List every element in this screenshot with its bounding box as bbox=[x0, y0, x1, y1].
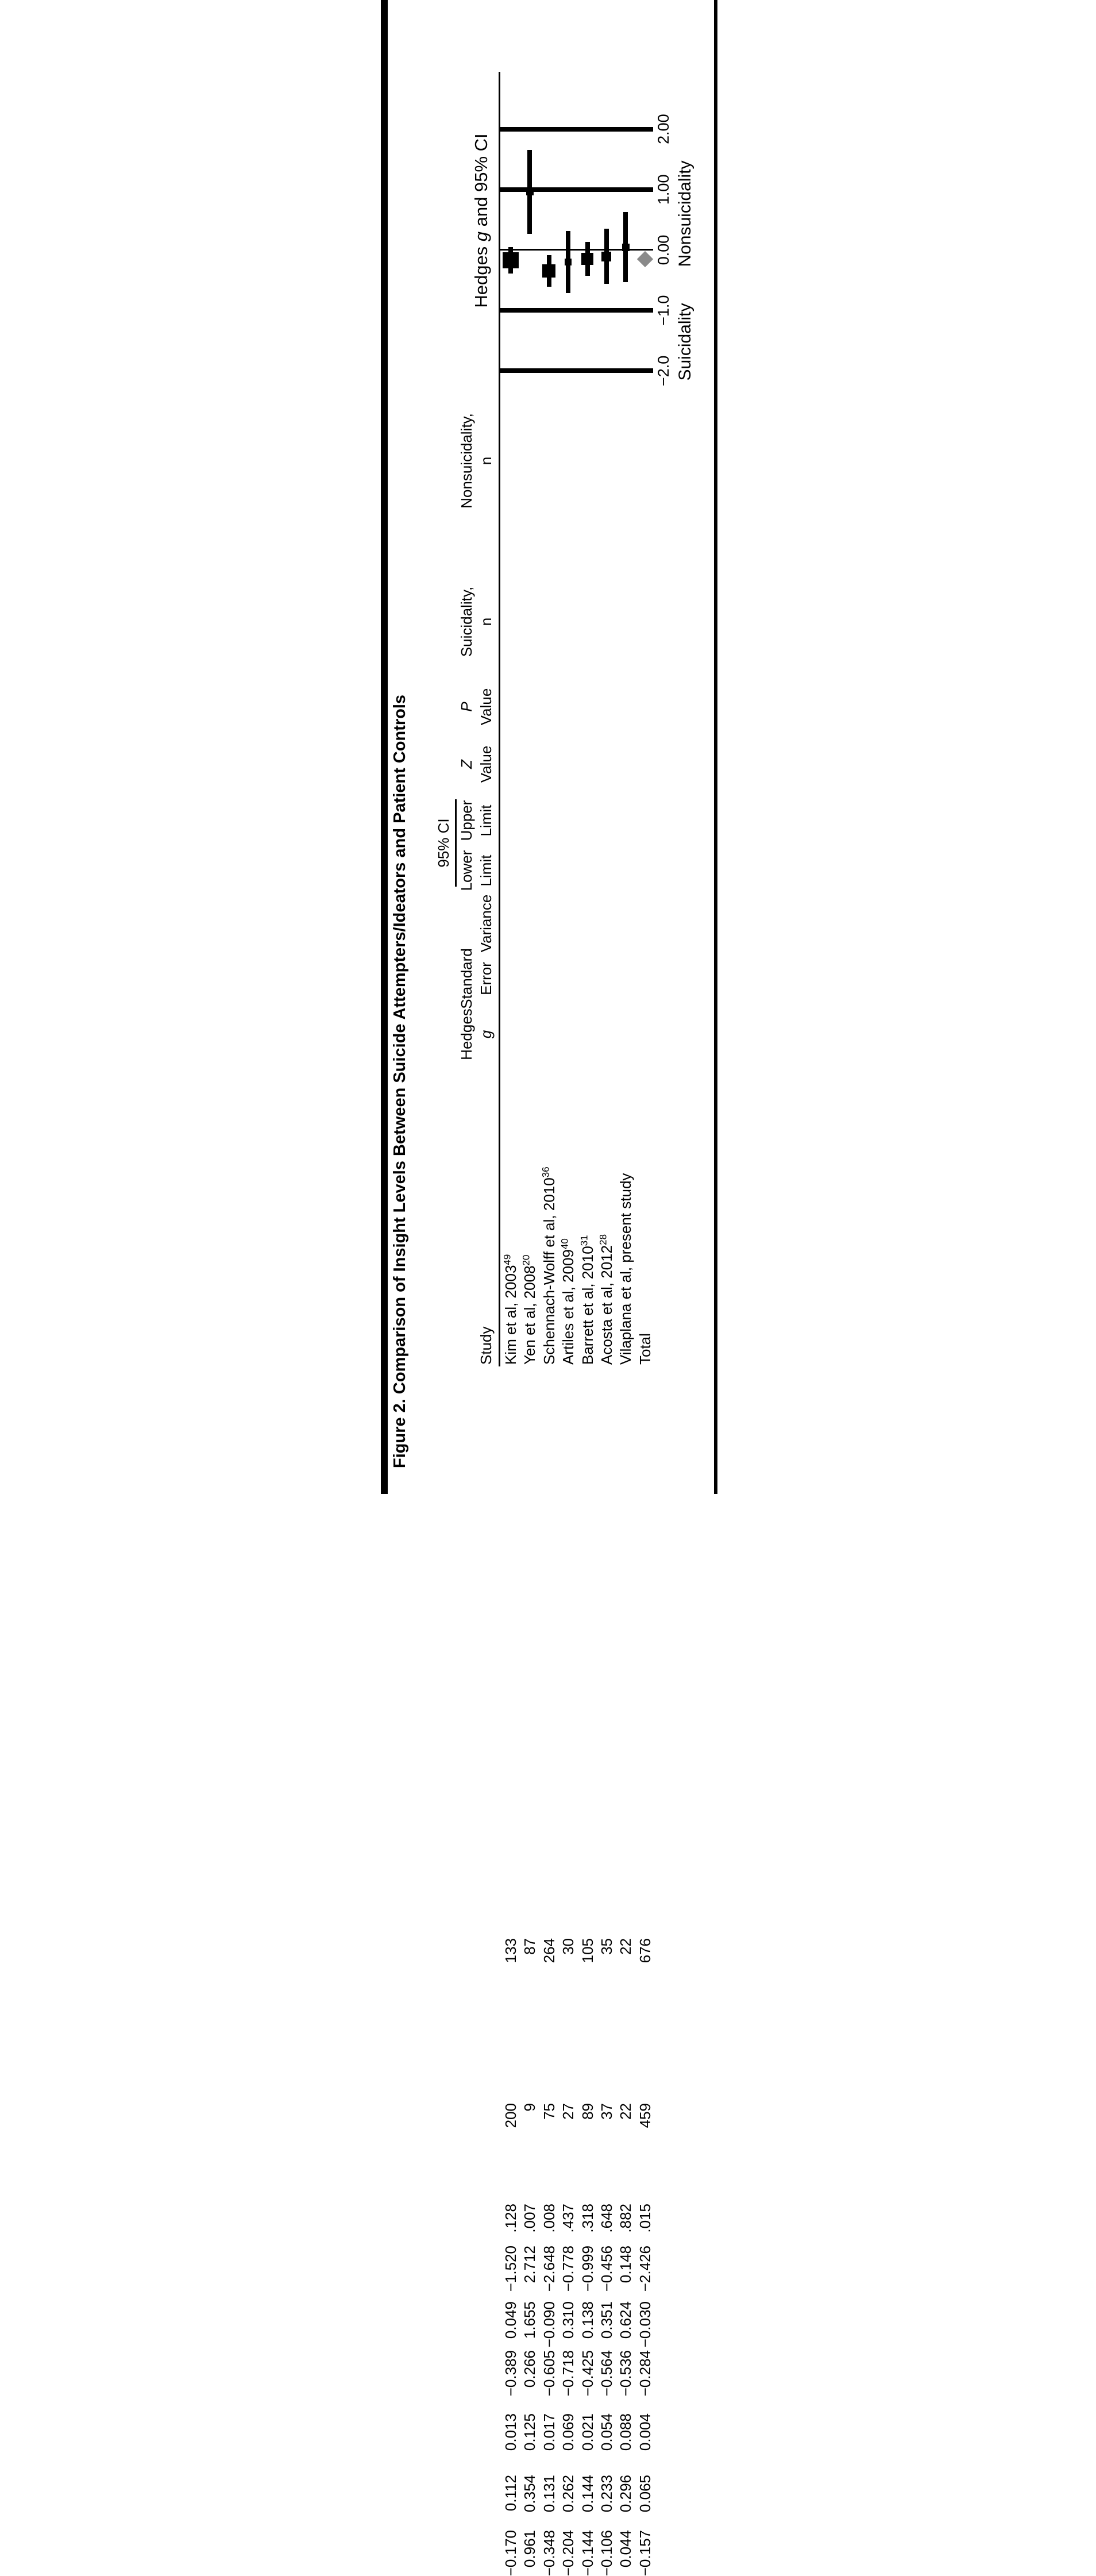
col-header-g-line1: Hedges bbox=[457, 1008, 476, 1060]
cell-z: −0.999 bbox=[578, 2246, 597, 2292]
cell-lower: −0.564 bbox=[597, 2350, 616, 2396]
gridline-1.00 bbox=[500, 187, 653, 192]
cell-upper: −0.030 bbox=[635, 2301, 655, 2347]
cell-variance: 0.017 bbox=[539, 2413, 559, 2451]
figure-stage: Figure 2. Comparison of Insight Levels B… bbox=[0, 0, 1096, 1494]
cell-nonsuic: 30 bbox=[558, 1938, 578, 1955]
col-header-se-line2: Error bbox=[476, 962, 496, 995]
study-name: Vilaplana et al, present study bbox=[616, 1173, 635, 1365]
gridline-−2.0 bbox=[500, 368, 653, 373]
cell-g: −0.106 bbox=[597, 2530, 616, 2576]
cell-z: −2.648 bbox=[539, 2246, 559, 2292]
cell-suic: 459 bbox=[635, 2103, 655, 2128]
study-reference-superscript: 40 bbox=[559, 1238, 570, 1249]
cell-lower: −0.389 bbox=[501, 2350, 520, 2396]
study-name-text: Kim et al, 2003 bbox=[502, 1265, 519, 1365]
col-header-variance-line2: Variance bbox=[476, 895, 496, 953]
cell-nonsuic: 87 bbox=[520, 1938, 539, 1955]
study-name: Acosta et al, 201228 bbox=[597, 1234, 616, 1365]
cell-upper: 0.624 bbox=[616, 2301, 635, 2339]
cell-variance: 0.125 bbox=[520, 2413, 539, 2451]
cell-upper: 0.138 bbox=[578, 2301, 597, 2339]
plot-header: Hedges g and 95% CI bbox=[471, 133, 492, 307]
total-diamond bbox=[636, 251, 653, 267]
col-header-upper-line2: Limit bbox=[476, 805, 496, 837]
plot-header-g-italic: g bbox=[471, 232, 491, 241]
cell-nonsuic: 676 bbox=[635, 1938, 655, 1963]
cell-p: .015 bbox=[635, 2204, 655, 2233]
tick-label-−1.0: −1.0 bbox=[655, 295, 673, 326]
figure-title: Figure 2. Comparison of Insight Levels B… bbox=[391, 695, 410, 1468]
cell-variance: 0.004 bbox=[635, 2413, 655, 2451]
effect-size-square bbox=[526, 188, 534, 195]
tick-label-0.00: 0.00 bbox=[655, 235, 673, 265]
cell-upper: 1.655 bbox=[520, 2301, 539, 2339]
table-header-rule bbox=[499, 72, 500, 1366]
axis-label-nonsuicidality: Nonsuicidality bbox=[676, 160, 695, 267]
cell-upper: 0.310 bbox=[558, 2301, 578, 2339]
study-name-text: Vilaplana et al, present study bbox=[617, 1173, 634, 1365]
cell-z: 0.148 bbox=[616, 2246, 635, 2283]
plot-header-text: Hedges bbox=[471, 241, 491, 307]
cell-suic: 75 bbox=[539, 2103, 559, 2120]
cell-p: .128 bbox=[501, 2204, 520, 2233]
cell-suic: 22 bbox=[616, 2103, 635, 2120]
study-name: Artiles et al, 200940 bbox=[558, 1238, 578, 1365]
study-name-text: Total bbox=[636, 1333, 654, 1365]
cell-se: 0.296 bbox=[616, 2475, 635, 2512]
cell-upper: −0.090 bbox=[539, 2301, 559, 2347]
study-name: Kim et al, 200349 bbox=[501, 1254, 520, 1365]
cell-p: .437 bbox=[558, 2204, 578, 2233]
cell-nonsuic: 22 bbox=[616, 1938, 635, 1955]
cell-g: −0.204 bbox=[558, 2530, 578, 2576]
figure-top-rule bbox=[381, 0, 388, 1494]
study-reference-superscript: 28 bbox=[597, 1234, 608, 1245]
cell-lower: −0.605 bbox=[539, 2350, 559, 2396]
cell-se: 0.065 bbox=[635, 2475, 655, 2512]
cell-se: 0.112 bbox=[501, 2475, 520, 2511]
col-header-suic-line2: n bbox=[476, 618, 496, 626]
cell-se: 0.144 bbox=[578, 2475, 597, 2512]
rotated-journal-page: { "title": "Figure 2. Comparison of Insi… bbox=[0, 0, 1096, 1494]
cell-upper: 0.351 bbox=[597, 2301, 616, 2339]
col-header-g-line2: g bbox=[476, 1030, 496, 1038]
cell-suic: 37 bbox=[597, 2103, 616, 2120]
cell-se: 0.233 bbox=[597, 2475, 616, 2512]
cell-g: −0.157 bbox=[635, 2530, 655, 2576]
study-name: Barrett et al, 201031 bbox=[578, 1235, 597, 1365]
cell-g: −0.348 bbox=[539, 2530, 559, 2576]
cell-suic: 9 bbox=[520, 2103, 539, 2111]
study-name: Schennach-Wolff et al, 201036 bbox=[539, 1166, 559, 1365]
cell-p: .882 bbox=[616, 2204, 635, 2233]
study-name-text: Acosta et al, 2012 bbox=[598, 1245, 615, 1365]
axis-label-suicidality: Suicidality bbox=[676, 303, 695, 380]
cell-lower: −0.284 bbox=[635, 2350, 655, 2396]
study-name-text: Schennach-Wolff et al, 2010 bbox=[541, 1177, 558, 1365]
cell-lower: −0.718 bbox=[558, 2350, 578, 2396]
plot-header-text: and 95% CI bbox=[471, 133, 491, 232]
axis-zero-line bbox=[500, 249, 653, 251]
study-name: Total bbox=[635, 1333, 655, 1365]
cell-se: 0.262 bbox=[558, 2475, 578, 2512]
effect-size-square bbox=[601, 252, 611, 261]
cell-nonsuic: 264 bbox=[539, 1938, 559, 1963]
gridline-2.00 bbox=[500, 127, 653, 132]
cell-variance: 0.069 bbox=[558, 2413, 578, 2451]
cell-nonsuic: 105 bbox=[578, 1938, 597, 1963]
cell-variance: 0.021 bbox=[578, 2413, 597, 2451]
study-name-text: Yen et al, 2008 bbox=[521, 1265, 538, 1365]
col-header-p-line1: P bbox=[457, 702, 476, 711]
figure-bottom-rule bbox=[714, 0, 717, 1494]
study-reference-superscript: 49 bbox=[501, 1254, 512, 1265]
cell-z: 2.712 bbox=[520, 2246, 539, 2283]
cell-variance: 0.088 bbox=[616, 2413, 635, 2451]
cell-g: −0.144 bbox=[578, 2530, 597, 2576]
cell-se: 0.131 bbox=[539, 2475, 559, 2512]
effect-size-square bbox=[565, 259, 572, 266]
ci-spanner-label: 95% CI bbox=[435, 818, 453, 867]
effect-size-square bbox=[622, 244, 630, 251]
cell-nonsuic: 133 bbox=[501, 1938, 520, 1963]
study-name-text: Barrett et al, 2010 bbox=[579, 1246, 596, 1365]
tick-label-−2.0: −2.0 bbox=[655, 356, 673, 386]
cell-suic: 27 bbox=[558, 2103, 578, 2120]
cell-z: −0.778 bbox=[558, 2246, 578, 2292]
tick-label-2.00: 2.00 bbox=[655, 114, 673, 144]
cell-z: −0.456 bbox=[597, 2246, 616, 2292]
cell-g: −0.170 bbox=[501, 2530, 520, 2576]
gridline-−1.0 bbox=[500, 308, 653, 313]
effect-size-square bbox=[581, 253, 593, 265]
cell-p: .318 bbox=[578, 2204, 597, 2233]
cell-p: .008 bbox=[539, 2204, 559, 2233]
effect-size-square bbox=[542, 264, 555, 278]
effect-size-square bbox=[503, 252, 519, 268]
col-header-nonsuic-line2: n bbox=[476, 457, 496, 465]
study-reference-superscript: 31 bbox=[578, 1235, 589, 1246]
col-header-se-line1: Standard bbox=[457, 948, 476, 1009]
cell-nonsuic: 35 bbox=[597, 1938, 616, 1955]
cell-variance: 0.054 bbox=[597, 2413, 616, 2451]
cell-se: 0.354 bbox=[520, 2475, 539, 2512]
study-name: Yen et al, 200820 bbox=[520, 1255, 539, 1365]
col-header-z-line1: Z bbox=[457, 760, 476, 769]
col-header-suic-line1: Suicidality, bbox=[457, 587, 476, 657]
col-header-z-line2: Value bbox=[476, 746, 496, 783]
cell-g: 0.044 bbox=[616, 2530, 635, 2567]
cell-g: 0.961 bbox=[520, 2530, 539, 2567]
cell-suic: 200 bbox=[501, 2103, 520, 2128]
cell-lower: −0.425 bbox=[578, 2350, 597, 2396]
cell-lower: 0.266 bbox=[520, 2350, 539, 2388]
col-header-study: Study bbox=[476, 1327, 496, 1365]
col-header-p-line2: Value bbox=[476, 688, 496, 726]
cell-p: .648 bbox=[597, 2204, 616, 2233]
study-reference-superscript: 20 bbox=[521, 1255, 532, 1266]
cell-p: .007 bbox=[520, 2204, 539, 2233]
col-header-lower-line1: Lower bbox=[457, 850, 476, 891]
tick-label-1.00: 1.00 bbox=[655, 175, 673, 205]
cell-z: −1.520 bbox=[501, 2246, 520, 2292]
cell-upper: 0.049 bbox=[501, 2301, 520, 2339]
cell-suic: 89 bbox=[578, 2103, 597, 2120]
col-header-lower-line2: Limit bbox=[476, 855, 496, 887]
col-header-upper-line1: Upper bbox=[457, 800, 476, 841]
col-header-nonsuic-line1: Nonsuicidality, bbox=[457, 413, 476, 509]
cell-variance: 0.013 bbox=[501, 2413, 520, 2451]
cell-lower: −0.536 bbox=[616, 2350, 635, 2396]
cell-z: −2.426 bbox=[635, 2246, 655, 2292]
study-name-text: Artiles et al, 2009 bbox=[559, 1249, 577, 1365]
study-reference-superscript: 36 bbox=[540, 1166, 551, 1177]
